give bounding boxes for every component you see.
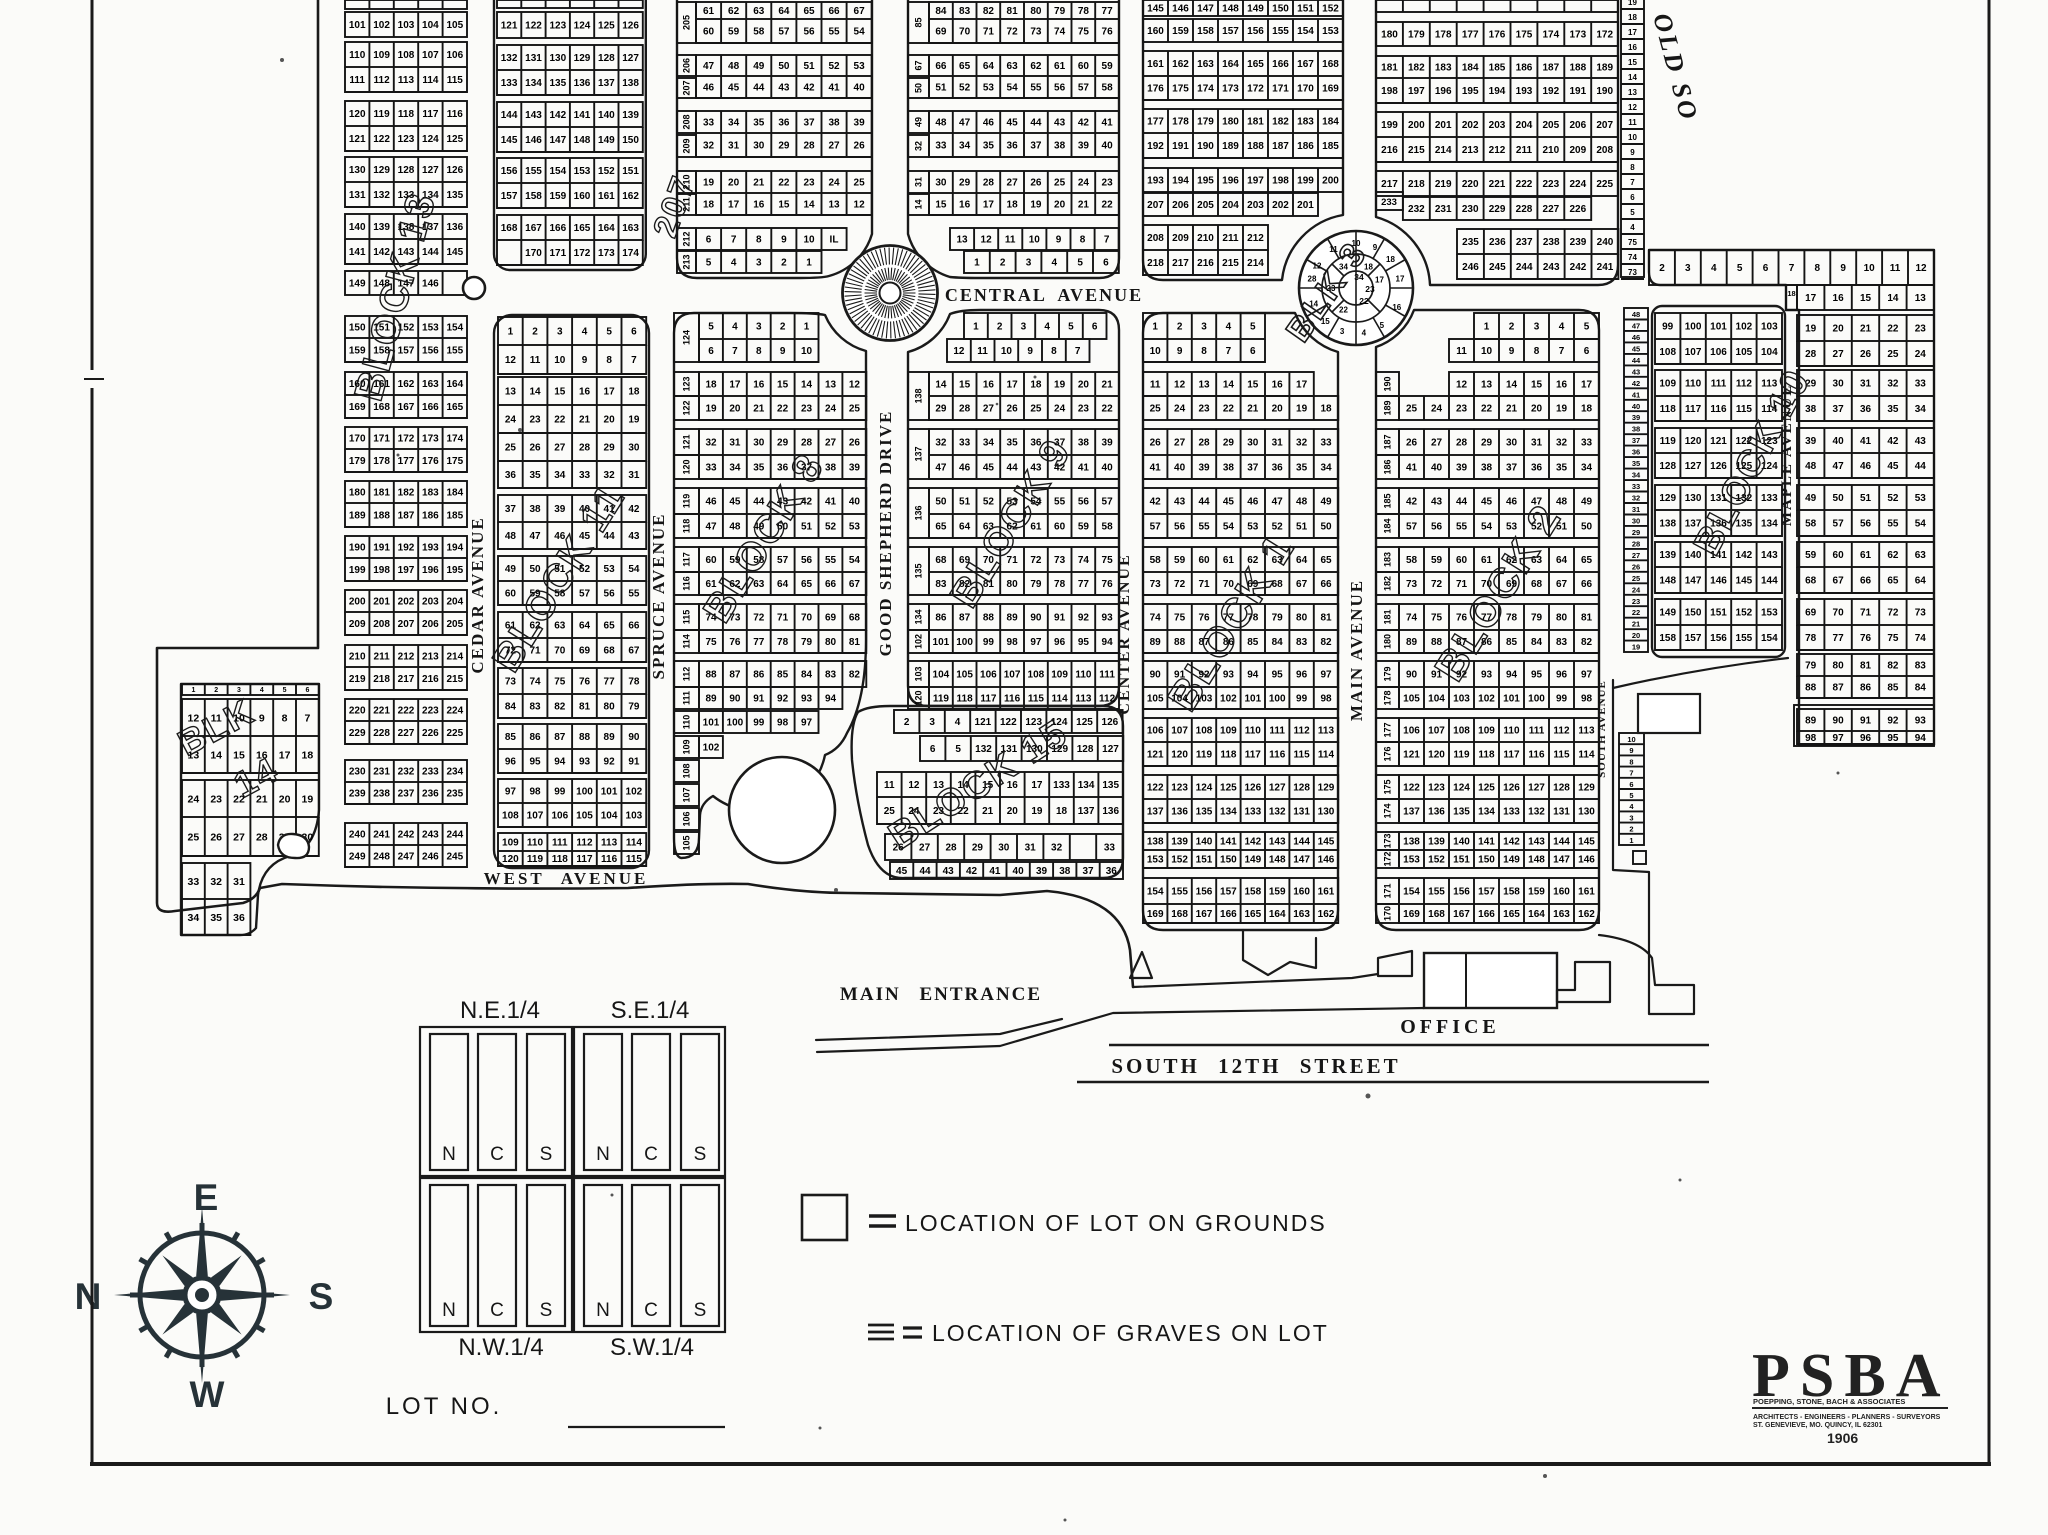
svg-text:233: 233 [1381, 197, 1397, 208]
svg-text:22: 22 [1339, 306, 1348, 315]
svg-text:213: 213 [682, 254, 692, 269]
svg-text:LOT NO.: LOT NO. [386, 1393, 503, 1420]
svg-text:14: 14 [1628, 73, 1637, 82]
svg-text:198197196195194193192191190: 198197196195194193192191190 [1381, 86, 1613, 97]
svg-text:34: 34 [1632, 471, 1641, 480]
svg-text:N: N [596, 1144, 610, 1165]
svg-text:29: 29 [1632, 528, 1640, 537]
svg-text:42: 42 [1632, 379, 1640, 388]
svg-text:208: 208 [682, 114, 692, 129]
svg-text:115: 115 [682, 610, 692, 625]
svg-text:36: 36 [1632, 448, 1640, 457]
svg-text:MAIN AVENUE: MAIN AVENUE [1347, 579, 1366, 721]
svg-text:C: C [644, 1300, 658, 1321]
svg-text:1: 1 [1629, 836, 1633, 845]
svg-text:114: 114 [682, 634, 692, 649]
svg-text:N: N [596, 1300, 610, 1321]
svg-text:POEPPING, STONE, BACH & ASSOCI: POEPPING, STONE, BACH & ASSOCIATES [1753, 1397, 1905, 1406]
svg-text:C: C [490, 1300, 504, 1321]
svg-text:MAPLE AVENUE: MAPLE AVENUE [1779, 384, 1795, 527]
svg-text:18: 18 [1787, 289, 1795, 298]
svg-text:43: 43 [1632, 367, 1640, 376]
svg-text:117: 117 [682, 552, 692, 567]
svg-text:WEST AVENUE: WEST AVENUE [484, 869, 649, 888]
svg-text:E: E [194, 1177, 219, 1218]
svg-text:136: 136 [914, 505, 924, 520]
svg-text:333231: 333231 [188, 876, 245, 888]
svg-text:205: 205 [682, 15, 692, 30]
svg-text:28: 28 [1632, 539, 1640, 548]
svg-text:183: 183 [1383, 552, 1393, 567]
svg-text:46: 46 [1632, 333, 1640, 342]
svg-text:MAIN ENTRANCE: MAIN ENTRANCE [840, 984, 1042, 1005]
svg-text:85: 85 [914, 17, 924, 27]
svg-text:120: 120 [682, 459, 692, 474]
svg-text:118: 118 [682, 519, 692, 534]
svg-text:170: 170 [1383, 906, 1393, 921]
svg-text:ARCHITECTS - ENGINEERS - PLANN: ARCHITECTS - ENGINEERS - PLANNERS - SURV… [1753, 1414, 1941, 1421]
svg-text:135: 135 [914, 563, 924, 578]
svg-text:N.E.1/4: N.E.1/4 [460, 997, 540, 1024]
svg-text:10: 10 [1627, 735, 1635, 744]
svg-text:187: 187 [1383, 434, 1393, 449]
svg-text:103: 103 [914, 666, 924, 681]
svg-text:10: 10 [1628, 133, 1637, 142]
svg-text:18: 18 [1628, 13, 1637, 22]
svg-text:35: 35 [1632, 459, 1640, 468]
svg-text:174: 174 [1383, 803, 1393, 818]
svg-text:178: 178 [1383, 690, 1393, 705]
svg-text:22: 22 [1359, 296, 1369, 306]
svg-text:67: 67 [914, 60, 924, 70]
svg-text:48: 48 [1632, 310, 1640, 319]
svg-text:18: 18 [1386, 255, 1395, 264]
svg-text:110: 110 [682, 715, 692, 730]
svg-text:6: 6 [1630, 193, 1635, 202]
svg-text:175: 175 [1383, 779, 1393, 794]
svg-text:134: 134 [914, 609, 924, 624]
svg-text:179: 179 [1383, 666, 1393, 681]
svg-text:2: 2 [1629, 825, 1633, 834]
svg-text:N: N [442, 1300, 456, 1321]
svg-text:102: 102 [703, 743, 720, 754]
svg-text:108: 108 [682, 763, 692, 778]
svg-text:44: 44 [1632, 356, 1641, 365]
svg-text:N.W.1/4: N.W.1/4 [458, 1334, 543, 1361]
svg-text:173: 173 [1383, 833, 1393, 848]
svg-text:32: 32 [914, 141, 924, 151]
svg-text:20: 20 [1632, 631, 1640, 640]
svg-text:9: 9 [1630, 148, 1635, 157]
svg-text:CENTRAL AVENUE: CENTRAL AVENUE [945, 285, 1143, 305]
svg-text:180: 180 [1383, 634, 1393, 649]
svg-text:33: 33 [1632, 482, 1640, 491]
svg-text:1906: 1906 [1827, 1430, 1858, 1446]
svg-text:217218219220221222223224225: 217218219220221222223224225 [1381, 179, 1613, 190]
svg-text:S: S [309, 1276, 334, 1317]
svg-text:207: 207 [682, 80, 692, 95]
svg-text:6: 6 [1629, 780, 1633, 789]
svg-text:124: 124 [682, 330, 692, 345]
svg-text:16: 16 [1392, 303, 1401, 312]
svg-text:119: 119 [682, 494, 692, 509]
svg-text:5: 5 [1380, 321, 1385, 330]
svg-text:5: 5 [1629, 791, 1633, 800]
svg-text:75: 75 [1628, 238, 1637, 247]
svg-text:181: 181 [1383, 609, 1393, 624]
svg-text:177: 177 [1383, 722, 1393, 737]
svg-text:106: 106 [682, 811, 692, 826]
svg-text:39: 39 [1632, 413, 1640, 422]
svg-text:26: 26 [1632, 562, 1640, 571]
svg-text:17: 17 [1375, 275, 1384, 284]
svg-text:12: 12 [1628, 103, 1637, 112]
svg-text:25: 25 [1632, 574, 1640, 583]
svg-text:199200201202203204205206207: 199200201202203204205206207 [1381, 120, 1613, 131]
svg-text:CEDAR AVENUE: CEDAR AVENUE [468, 516, 487, 673]
svg-text:186: 186 [1383, 459, 1393, 474]
svg-text:31: 31 [1632, 505, 1640, 514]
svg-text:23: 23 [1632, 597, 1640, 606]
svg-text:S: S [694, 1300, 707, 1321]
svg-text:LOCATION OF LOT ON GROUNDS: LOCATION OF LOT ON GROUNDS [905, 1210, 1327, 1236]
svg-text:SOUTH AVENUE: SOUTH AVENUE [1596, 680, 1608, 778]
svg-text:189: 189 [1383, 400, 1393, 415]
svg-text:LOCATION OF GRAVES ON LOT: LOCATION OF GRAVES ON LOT [932, 1320, 1329, 1346]
svg-text:105: 105 [682, 835, 692, 850]
svg-text:172: 172 [1383, 851, 1393, 866]
svg-text:11: 11 [1628, 118, 1637, 127]
svg-text:4: 4 [1362, 328, 1367, 337]
svg-text:185: 185 [1383, 493, 1393, 508]
svg-text:SOUTH 12TH STREET: SOUTH 12TH STREET [1111, 1054, 1400, 1078]
svg-text:W: W [190, 1374, 225, 1415]
svg-text:206: 206 [682, 58, 692, 73]
svg-text:47: 47 [1632, 322, 1640, 331]
svg-text:209: 209 [682, 138, 692, 153]
svg-text:31: 31 [914, 177, 924, 187]
svg-text:21: 21 [1632, 620, 1640, 629]
svg-text:111: 111 [682, 691, 692, 705]
svg-text:37: 37 [1632, 436, 1640, 445]
svg-text:120: 120 [914, 690, 924, 705]
svg-text:3: 3 [1629, 813, 1633, 822]
svg-text:41: 41 [1632, 390, 1640, 399]
svg-text:74: 74 [1628, 253, 1637, 262]
svg-text:N: N [75, 1276, 102, 1317]
svg-text:16: 16 [1628, 43, 1637, 52]
svg-text:C: C [490, 1144, 504, 1165]
svg-text:8: 8 [1629, 757, 1633, 766]
svg-text:17: 17 [1628, 28, 1637, 37]
svg-text:SPRUCE AVENUE: SPRUCE AVENUE [649, 513, 668, 680]
svg-text:5: 5 [1630, 208, 1635, 217]
svg-text:32: 32 [1632, 494, 1640, 503]
svg-text:22: 22 [1632, 608, 1640, 617]
svg-text:182: 182 [1383, 576, 1393, 591]
svg-text:7: 7 [1629, 769, 1633, 778]
svg-text:176: 176 [1383, 746, 1393, 761]
svg-text:137: 137 [914, 446, 924, 461]
svg-text:30: 30 [1632, 517, 1640, 526]
svg-text:123: 123 [682, 376, 692, 391]
svg-text:343536: 343536 [188, 912, 245, 924]
svg-text:190: 190 [1383, 376, 1393, 391]
svg-text:23: 23 [1365, 284, 1375, 294]
svg-text:121: 121 [682, 434, 692, 449]
svg-text:27: 27 [1632, 551, 1640, 560]
svg-text:9: 9 [1629, 746, 1633, 755]
svg-text:171: 171 [1383, 883, 1393, 898]
svg-text:17: 17 [1396, 275, 1405, 284]
svg-text:102: 102 [914, 634, 924, 649]
svg-text:13: 13 [1628, 88, 1637, 97]
svg-text:3: 3 [1340, 327, 1345, 336]
svg-text:49: 49 [914, 117, 924, 127]
svg-text:OFFICE: OFFICE [1400, 1016, 1500, 1038]
svg-text:GOOD SHEPHERD DRIVE: GOOD SHEPHERD DRIVE [876, 410, 895, 657]
svg-text:S.W.1/4: S.W.1/4 [610, 1334, 694, 1361]
svg-text:14: 14 [914, 199, 924, 209]
svg-text:7: 7 [1630, 178, 1635, 187]
svg-text:109: 109 [682, 739, 692, 754]
svg-text:ST. GENEVIEVE, MO. QU: ST. GENEVIEVE, MO. QUINCY, IL 62301 [1753, 1422, 1883, 1429]
svg-text:45: 45 [1632, 344, 1640, 353]
svg-text:122: 122 [682, 400, 692, 415]
svg-text:N: N [442, 1144, 456, 1165]
svg-text:180179178177176175174173172: 180179178177176175174173172 [1381, 30, 1613, 41]
svg-text:181182183184185186187188189: 181182183184185186187188189 [1381, 63, 1613, 74]
svg-text:73: 73 [1628, 268, 1637, 277]
svg-text:107: 107 [682, 787, 692, 802]
svg-text:216215214213212211210209208: 216215214213212211210209208 [1381, 145, 1613, 156]
svg-text:138: 138 [914, 388, 924, 403]
svg-text:CENTER AVENUE: CENTER AVENUE [1116, 553, 1133, 714]
svg-text:8: 8 [1630, 163, 1635, 172]
svg-text:15: 15 [1628, 58, 1637, 67]
svg-text:50: 50 [914, 83, 924, 93]
svg-text:S.E.1/4: S.E.1/4 [611, 997, 690, 1024]
svg-text:S: S [694, 1144, 707, 1165]
svg-text:24: 24 [1632, 585, 1641, 594]
svg-text:S: S [540, 1300, 553, 1321]
svg-text:184: 184 [1383, 518, 1393, 533]
svg-text:40: 40 [1632, 402, 1640, 411]
svg-text:19: 19 [1632, 643, 1640, 652]
svg-text:38: 38 [1632, 425, 1640, 434]
svg-text:C: C [644, 1144, 658, 1165]
svg-text:4: 4 [1630, 223, 1635, 232]
svg-text:112: 112 [682, 667, 692, 682]
svg-text:9: 9 [1373, 243, 1378, 252]
svg-text:19: 19 [1628, 0, 1637, 7]
svg-text:S: S [540, 1144, 553, 1165]
svg-text:116: 116 [682, 576, 692, 591]
